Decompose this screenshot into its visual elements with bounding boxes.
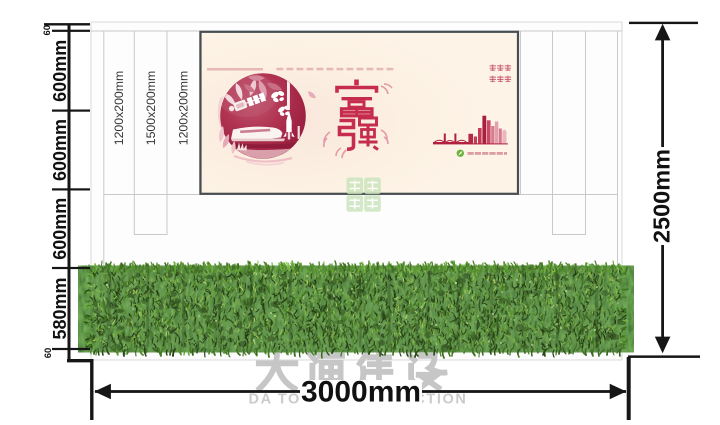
svg-text:600mm: 600mm — [50, 198, 70, 260]
svg-text:600mm: 600mm — [50, 40, 70, 102]
svg-text:1500x200mm: 1500x200mm — [144, 71, 158, 146]
svg-text:1200x200mm: 1200x200mm — [112, 71, 126, 146]
svg-text:60: 60 — [42, 25, 53, 36]
svg-text:2500mm: 2500mm — [649, 149, 675, 243]
svg-text:1200x200mm: 1200x200mm — [176, 71, 190, 146]
svg-text:3000mm: 3000mm — [301, 376, 421, 409]
svg-text:60: 60 — [43, 348, 54, 359]
svg-text:600mm: 600mm — [50, 119, 70, 181]
svg-text:580mm: 580mm — [50, 277, 70, 339]
